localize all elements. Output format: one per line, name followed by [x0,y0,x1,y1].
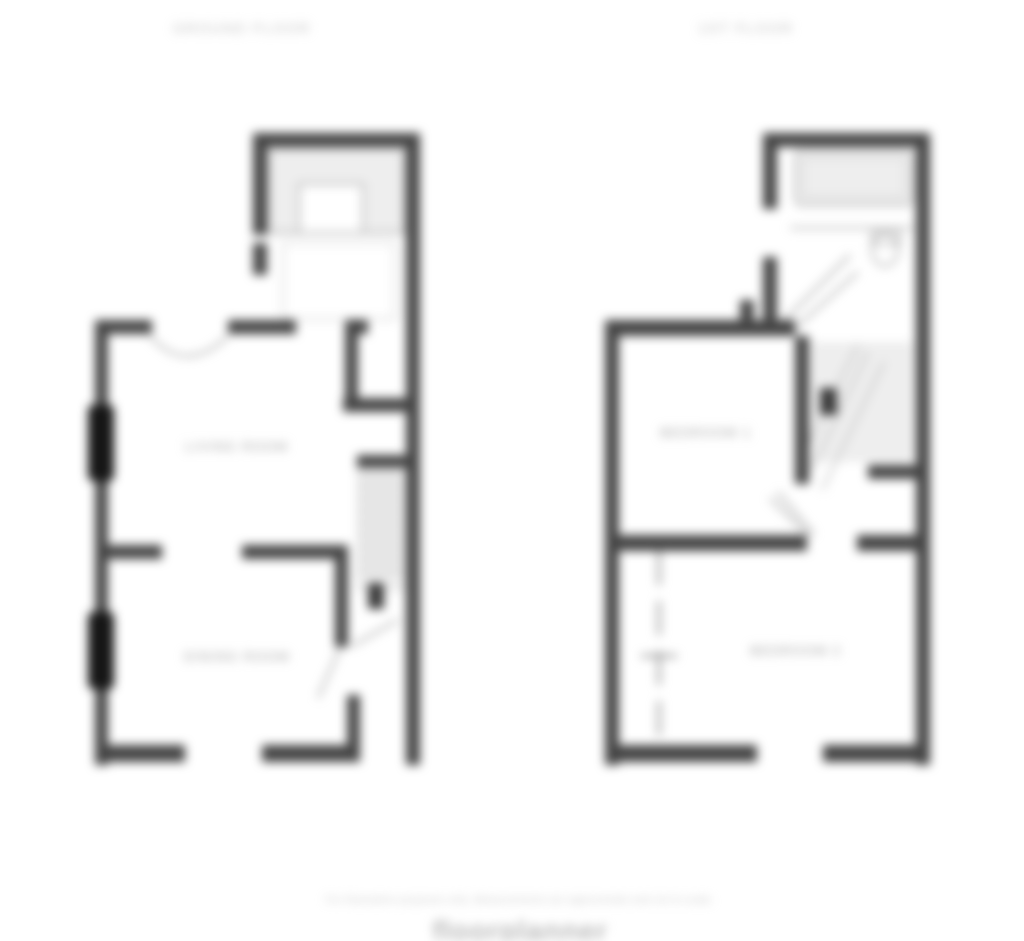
wall-segment [343,398,420,412]
room-label: DINING ROOM [184,649,290,664]
disclaimer-text: For illustrative purposes only. Measurem… [326,895,714,906]
wall-segment [916,133,930,765]
wall-segment [605,535,807,551]
brand-text: floorplanner [432,915,607,941]
kitchen-table [283,243,395,319]
door-swing-arc [150,336,228,356]
room-label: LIVING ROOM [185,439,288,454]
floor-title: 1ST FLOOR [698,20,794,36]
wall-segment [95,320,152,334]
floorplan-sheet: GROUND FLOOR LIVING ROOM DINING ROOM [0,0,1024,941]
wall-segment [95,745,185,762]
wall-segment [763,133,777,209]
wall-segment [357,455,420,468]
footer: For illustrative purposes only. Measurem… [326,895,714,941]
blurred-drawing: GROUND FLOOR LIVING ROOM DINING ROOM [0,0,1024,941]
wall-segment [228,320,296,334]
wall-segment [262,745,348,762]
wall-segment [95,545,162,559]
sink-fixture [299,184,363,233]
wall-segment [857,535,930,551]
door-swing-line [318,648,340,698]
door-swing-line [775,255,850,330]
wall-segment [763,133,930,147]
floorplan-ground: GROUND FLOOR LIVING ROOM DINING ROOM [88,20,420,765]
wall-segment [740,300,754,334]
wall-segment [823,745,930,762]
wall-segment [253,243,267,275]
wall-segment [242,545,348,559]
door-leaf [820,388,837,415]
room-label: BEDROOM 1 [660,425,752,440]
door-swing-line [352,620,398,646]
wall-segment [605,320,795,336]
door-swing-line [770,498,808,535]
wall-segment [347,695,360,762]
toilet-fixture [872,234,898,266]
wall-segment [335,545,348,647]
door-swing-line [778,492,814,535]
floorplan-first: 1ST FLOOR BEDROOM 1 BEDROOM 2 [605,20,930,765]
room-label: BEDROOM 2 [750,643,842,658]
wall-segment [795,336,809,484]
wall-segment [605,745,757,762]
window-marker [88,612,114,689]
wall-segment [253,133,267,235]
floorplan-svg: GROUND FLOOR LIVING ROOM DINING ROOM [0,0,1024,941]
wall-segment [406,133,420,765]
wall-segment [868,465,916,479]
floor-title: GROUND FLOOR [173,20,311,36]
door-leaf [368,583,384,609]
wall-segment [253,133,420,147]
closet-partition [641,551,677,745]
wall-segment [95,320,108,765]
window-marker [88,405,114,481]
